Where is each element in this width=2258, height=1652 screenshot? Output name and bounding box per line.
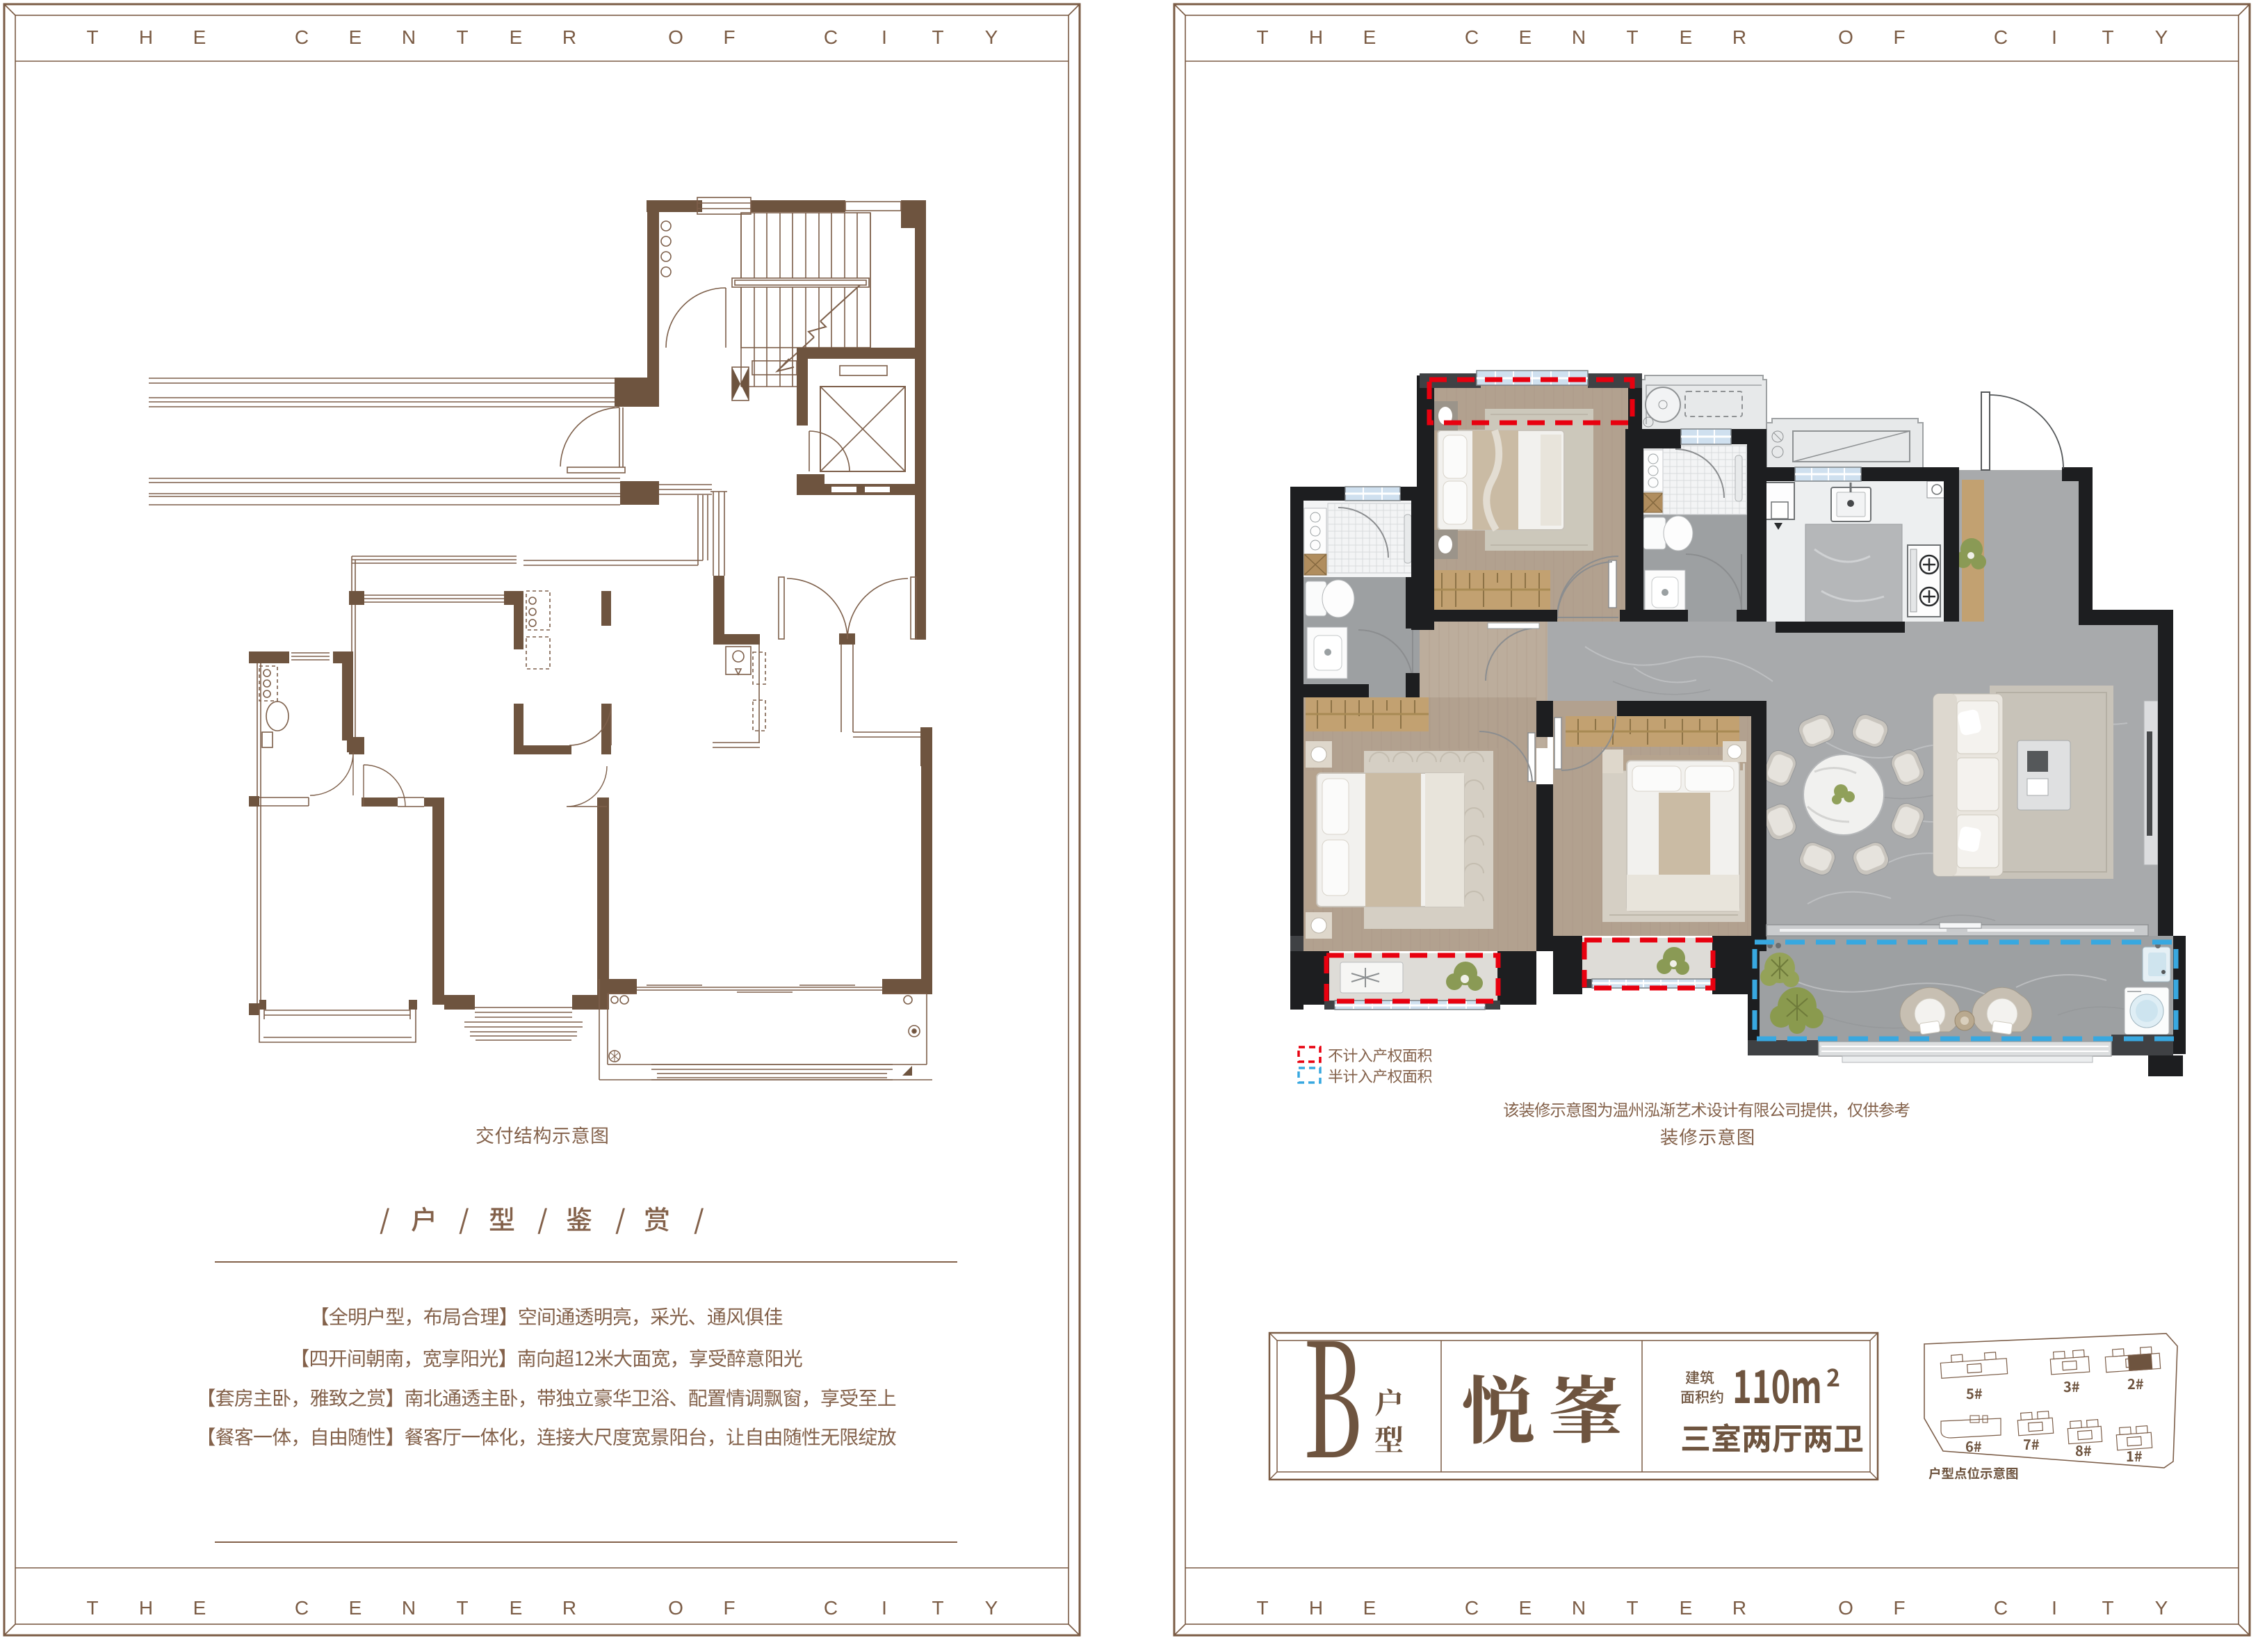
svg-text:E: E [1363, 1597, 1376, 1619]
svg-text:I: I [2052, 26, 2057, 48]
svg-text:E: E [510, 1597, 523, 1619]
svg-text:H: H [1309, 1597, 1323, 1619]
svg-text:N: N [1572, 1597, 1586, 1619]
svg-text:C: C [1994, 26, 2008, 48]
svg-text:T: T [86, 1597, 98, 1619]
svg-text:T: T [456, 1597, 468, 1619]
svg-text:E: E [349, 26, 362, 48]
svg-text:I: I [882, 1597, 887, 1619]
svg-text:E: E [510, 26, 523, 48]
svg-text:Y: Y [985, 26, 998, 48]
svg-text:T: T [1626, 26, 1638, 48]
svg-text:C: C [295, 26, 309, 48]
svg-text:O: O [668, 26, 683, 48]
svg-text:C: C [1465, 26, 1479, 48]
svg-text:H: H [1309, 26, 1323, 48]
svg-text:Y: Y [2155, 26, 2168, 48]
svg-text:T: T [2102, 1597, 2113, 1619]
svg-text:R: R [1732, 1597, 1746, 1619]
svg-text:F: F [723, 26, 735, 48]
svg-text:C: C [1465, 1597, 1479, 1619]
svg-text:I: I [882, 26, 887, 48]
svg-text:Y: Y [985, 1597, 998, 1619]
svg-text:E: E [1519, 26, 1532, 48]
svg-text:T: T [1256, 1597, 1268, 1619]
svg-text:R: R [562, 26, 576, 48]
svg-text:F: F [1893, 1597, 1905, 1619]
svg-text:T: T [932, 26, 943, 48]
svg-text:H: H [139, 26, 153, 48]
svg-text:C: C [824, 1597, 838, 1619]
svg-text:E: E [1519, 1597, 1532, 1619]
svg-text:E: E [1680, 1597, 1693, 1619]
svg-text:E: E [1680, 26, 1693, 48]
svg-text:T: T [456, 26, 468, 48]
svg-text:E: E [1363, 26, 1376, 48]
svg-text:T: T [1626, 1597, 1638, 1619]
svg-text:E: E [193, 26, 206, 48]
svg-text:C: C [824, 26, 838, 48]
svg-text:N: N [402, 26, 416, 48]
svg-text:T: T [1256, 26, 1268, 48]
svg-text:E: E [349, 1597, 362, 1619]
svg-text:O: O [668, 1597, 683, 1619]
svg-text:O: O [1838, 1597, 1853, 1619]
svg-text:F: F [723, 1597, 735, 1619]
svg-text:E: E [193, 1597, 206, 1619]
svg-text:R: R [562, 1597, 576, 1619]
svg-text:F: F [1893, 26, 1905, 48]
svg-text:T: T [932, 1597, 943, 1619]
svg-text:N: N [402, 1597, 416, 1619]
svg-text:O: O [1838, 26, 1853, 48]
svg-text:T: T [2102, 26, 2113, 48]
svg-text:I: I [2052, 1597, 2057, 1619]
svg-text:C: C [295, 1597, 309, 1619]
svg-text:Y: Y [2155, 1597, 2168, 1619]
svg-text:R: R [1732, 26, 1746, 48]
svg-text:C: C [1994, 1597, 2008, 1619]
svg-text:T: T [86, 26, 98, 48]
svg-text:N: N [1572, 26, 1586, 48]
svg-text:H: H [139, 1597, 153, 1619]
